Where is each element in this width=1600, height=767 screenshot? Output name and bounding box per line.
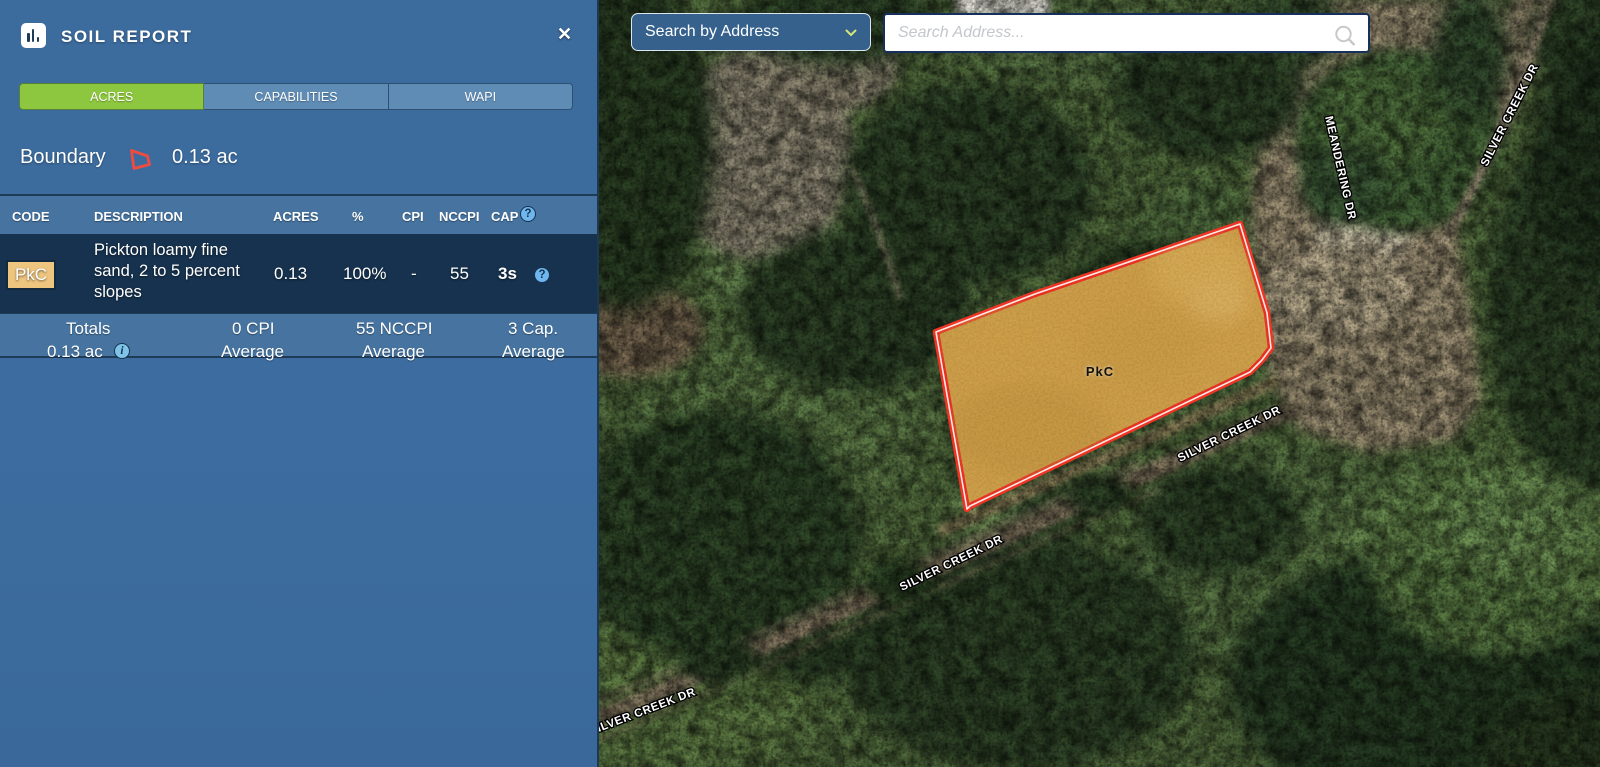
svg-text:PkC: PkC (1086, 364, 1114, 379)
